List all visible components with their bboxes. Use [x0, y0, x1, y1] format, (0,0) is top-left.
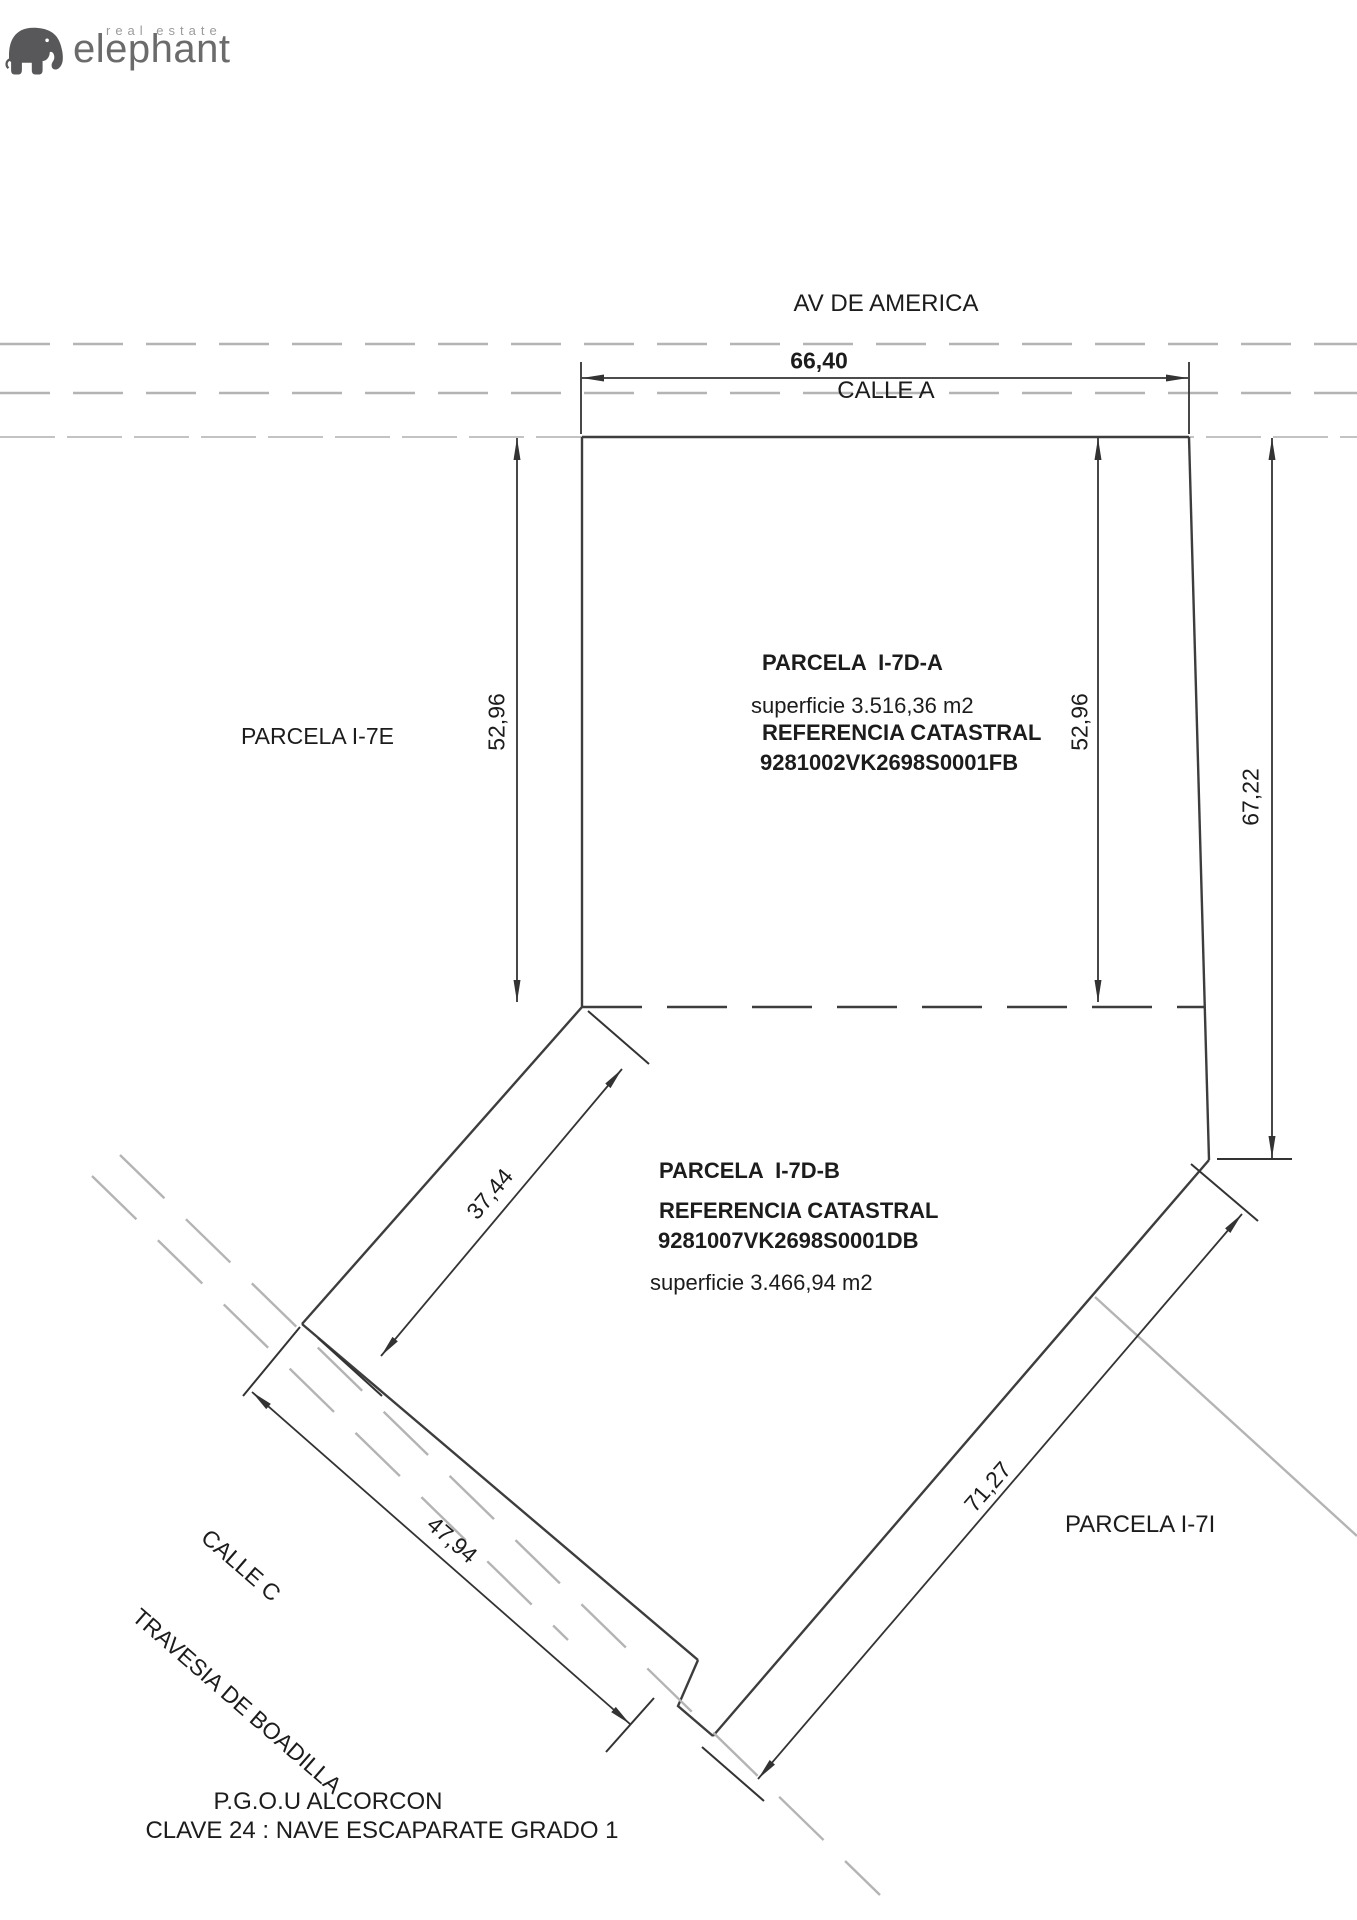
dim-left-depth-label: 52,96	[484, 693, 511, 751]
avenue-road-lines	[0, 344, 1357, 437]
parcel-a-area: superficie 3.516,36 m2	[751, 693, 974, 718]
parcel-b-area: superficie 3.466,94 m2	[650, 1270, 873, 1295]
parcel-a-ref-label: REFERENCIA CATASTRAL	[762, 720, 1041, 745]
dim-right-total-label: 67,22	[1238, 768, 1265, 826]
site-plan-page: real estate elephant	[0, 0, 1357, 1920]
dim-top-width-label: 66,40	[790, 348, 848, 375]
avenue-label-line2: CALLE A	[766, 376, 1006, 405]
avenue-label-line1: AV DE AMERICA	[766, 289, 1006, 318]
parcel-a-ref-value: 9281002VK2698S0001FB	[760, 750, 1018, 775]
parcel-b-ref-label: REFERENCIA CATASTRAL	[659, 1198, 938, 1223]
parcel-i7e-label: PARCELA I-7E	[241, 723, 394, 749]
dim-right-depth-label: 52,96	[1067, 693, 1094, 751]
parcel-a-outline	[582, 437, 1209, 1160]
parcel-b-title: PARCELA I-7D-B	[659, 1158, 840, 1183]
parcel-b-ref-value: 9281007VK2698S0001DB	[658, 1228, 919, 1253]
parcel-a-title: PARCELA I-7D-A	[762, 650, 943, 675]
parcel-i7i-label: PARCELA I-7I	[1065, 1511, 1215, 1539]
footer-note-line2: CLAVE 24 : NAVE ESCAPARATE GRADO 1	[132, 1817, 632, 1845]
footer-note-line1: P.G.O.U ALCORCON	[178, 1788, 478, 1816]
